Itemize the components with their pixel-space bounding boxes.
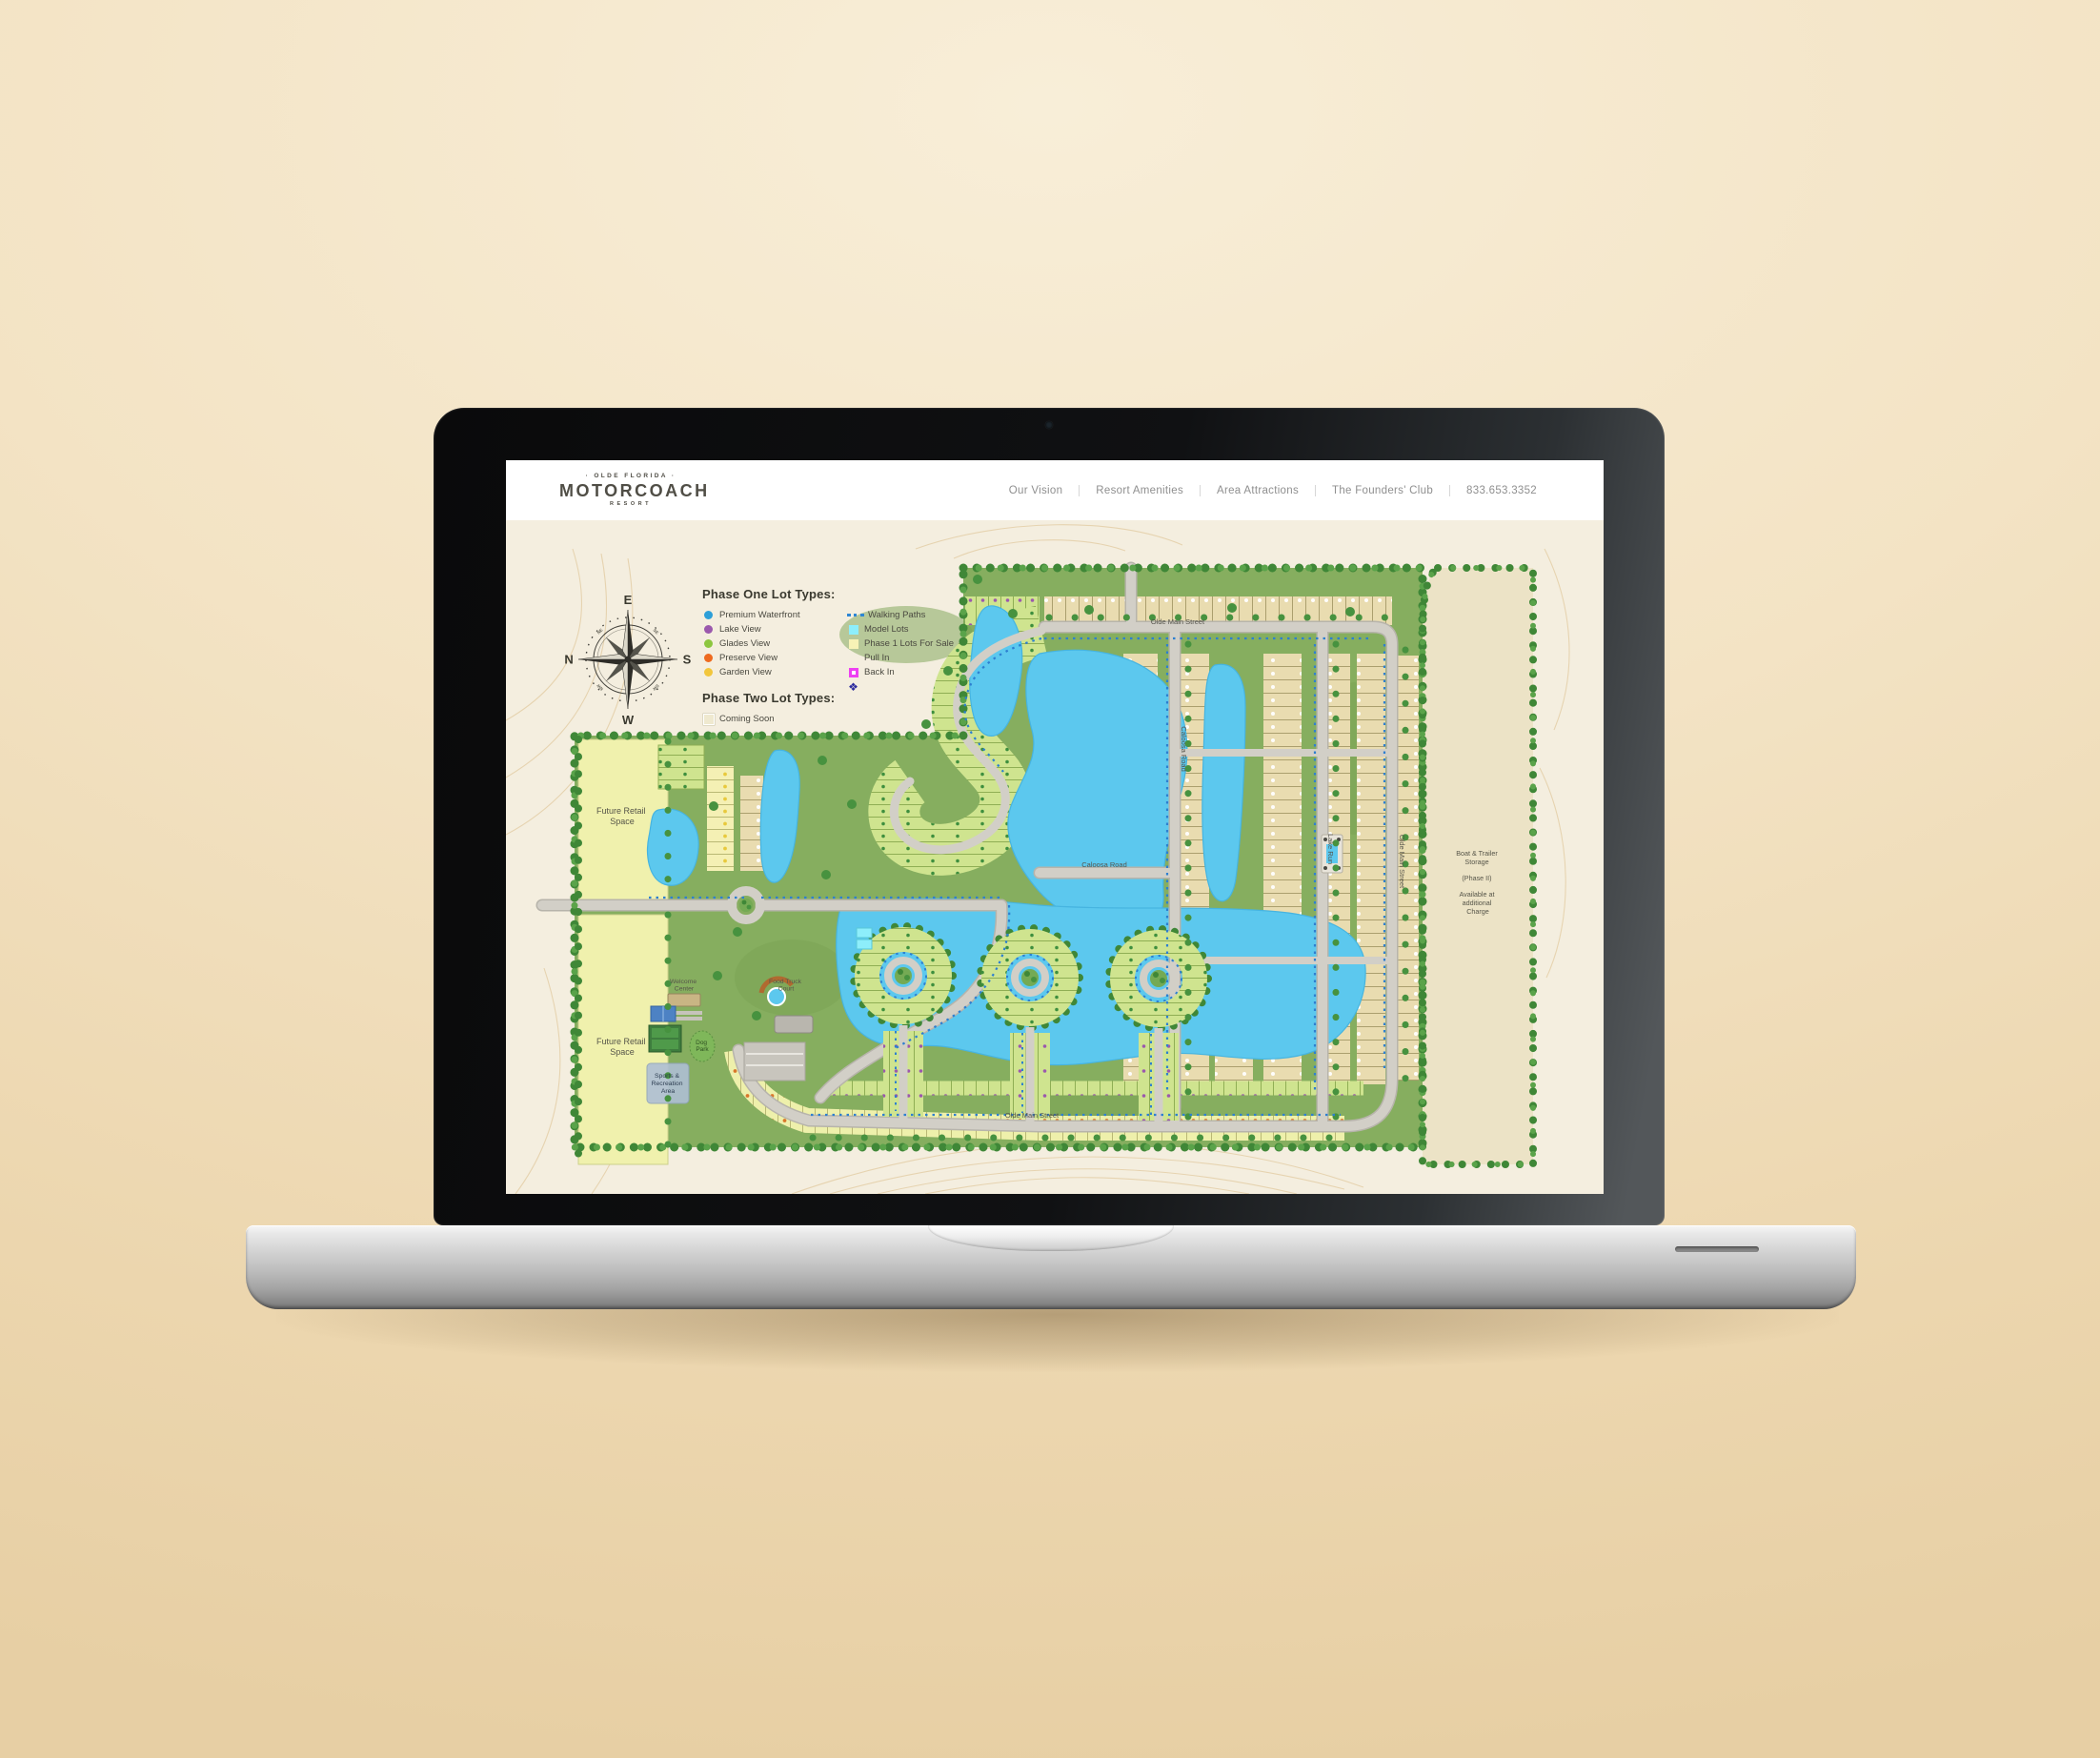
garden-view-dot-icon [702,666,715,678]
phase1-lots-square-icon [847,637,859,650]
legend-compass-marker-row: ❖ [847,679,954,694]
logo-sub: RESORT [559,501,702,507]
legend-item-walking-paths: Walking Paths [847,608,954,622]
pull-in-icon [847,652,859,664]
street-lake-run: Lake Run [1326,834,1335,864]
legend-column-2: Walking Paths Model Lots Phase 1 Lots Fo… [847,608,954,726]
clubhouse-building [775,1016,813,1033]
back-in-square-icon [847,666,859,678]
street-olde-main-right: Olde Main Street [1398,835,1406,889]
laptop-thumb-scoop [928,1225,1174,1251]
legend-item-back-in: Back In [847,665,954,679]
lake-view-dot-icon [702,623,715,636]
main-nav: Our Vision Resort Amenities Area Attract… [993,476,1537,505]
model-lots-square-icon [847,623,859,636]
legend-item-glades-view: Glades View [702,637,847,651]
legend-phase-one-title: Phase One Lot Types: [702,587,954,601]
legend-item-lake-view: Lake View [702,622,847,637]
legend-item-model-lots: Model Lots [847,622,954,637]
laptop-vent-slot [1675,1246,1759,1252]
site-logo[interactable]: · OLDE FLORIDA · MOTORCOACH RESORT [559,473,702,507]
nav-resort-amenities[interactable]: Resort Amenities [1080,485,1201,496]
site-header: · OLDE FLORIDA · MOTORCOACH RESORT Our V… [506,460,1604,520]
boat-storage-area [1423,568,1533,1164]
compass-s: S [683,653,692,667]
nav-phone-link[interactable]: 833.653.3352 [1450,485,1537,496]
label-dog-park: Dog Park [696,1040,709,1053]
site-plan-svg: Future Retail Space Future Retail Space … [506,520,1604,1194]
laptop-base [246,1225,1856,1309]
street-caloosa-horizontal: Caloosa Road [1081,860,1127,869]
legend-item-coming-soon: Coming Soon [702,712,847,726]
legend-item-pull-in: Pull In [847,651,954,665]
glades-view-dot-icon [702,637,715,650]
logo-top-line: · OLDE FLORIDA · [559,473,702,479]
nav-our-vision[interactable]: Our Vision [993,485,1080,496]
street-caloosa-vertical: Caloosa Road [1180,726,1188,772]
compass-w: W [622,713,635,727]
walking-paths-dotted-icon [847,614,864,616]
parking-lot [744,1042,805,1081]
laptop-screen-bezel: · OLDE FLORIDA · MOTORCOACH RESORT Our V… [434,408,1665,1225]
compass-e: E [624,593,633,607]
legend-item-preserve-view: Preserve View [702,651,847,665]
nav-area-attractions[interactable]: Area Attractions [1201,485,1316,496]
street-olde-main-top: Olde Main Street [1151,617,1205,626]
map-legend: Phase One Lot Types: Premium Waterfront … [702,587,954,726]
legend-item-phase1-lots: Phase 1 Lots For Sale [847,637,954,651]
website-screen: · OLDE FLORIDA · MOTORCOACH RESORT Our V… [506,460,1604,1194]
street-olde-main-bottom: Olde Main Street [1005,1111,1060,1120]
legend-column-1: Premium Waterfront Lake View Glades View [702,608,847,726]
webcam-icon [1045,421,1053,429]
compass-marker-icon: ❖ [847,680,859,693]
resort-site-map: Future Retail Space Future Retail Space … [506,520,1604,1194]
legend-item-garden-view: Garden View [702,665,847,679]
compass-n: N [564,653,573,667]
legend-phase-two-title: Phase Two Lot Types: [702,691,847,705]
premium-waterfront-dot-icon [702,609,715,621]
welcome-center-building [668,994,700,1006]
preserve-view-dot-icon [702,652,715,664]
roundabout [732,891,760,919]
logo-main: MOTORCOACH [559,481,702,501]
legend-item-premium-waterfront: Premium Waterfront [702,608,847,622]
nav-founders-club[interactable]: The Founders' Club [1316,485,1450,496]
coming-soon-square-icon [702,713,715,725]
page: { "site": { "logo": { "top": "· OLDE FLO… [0,0,2100,1758]
